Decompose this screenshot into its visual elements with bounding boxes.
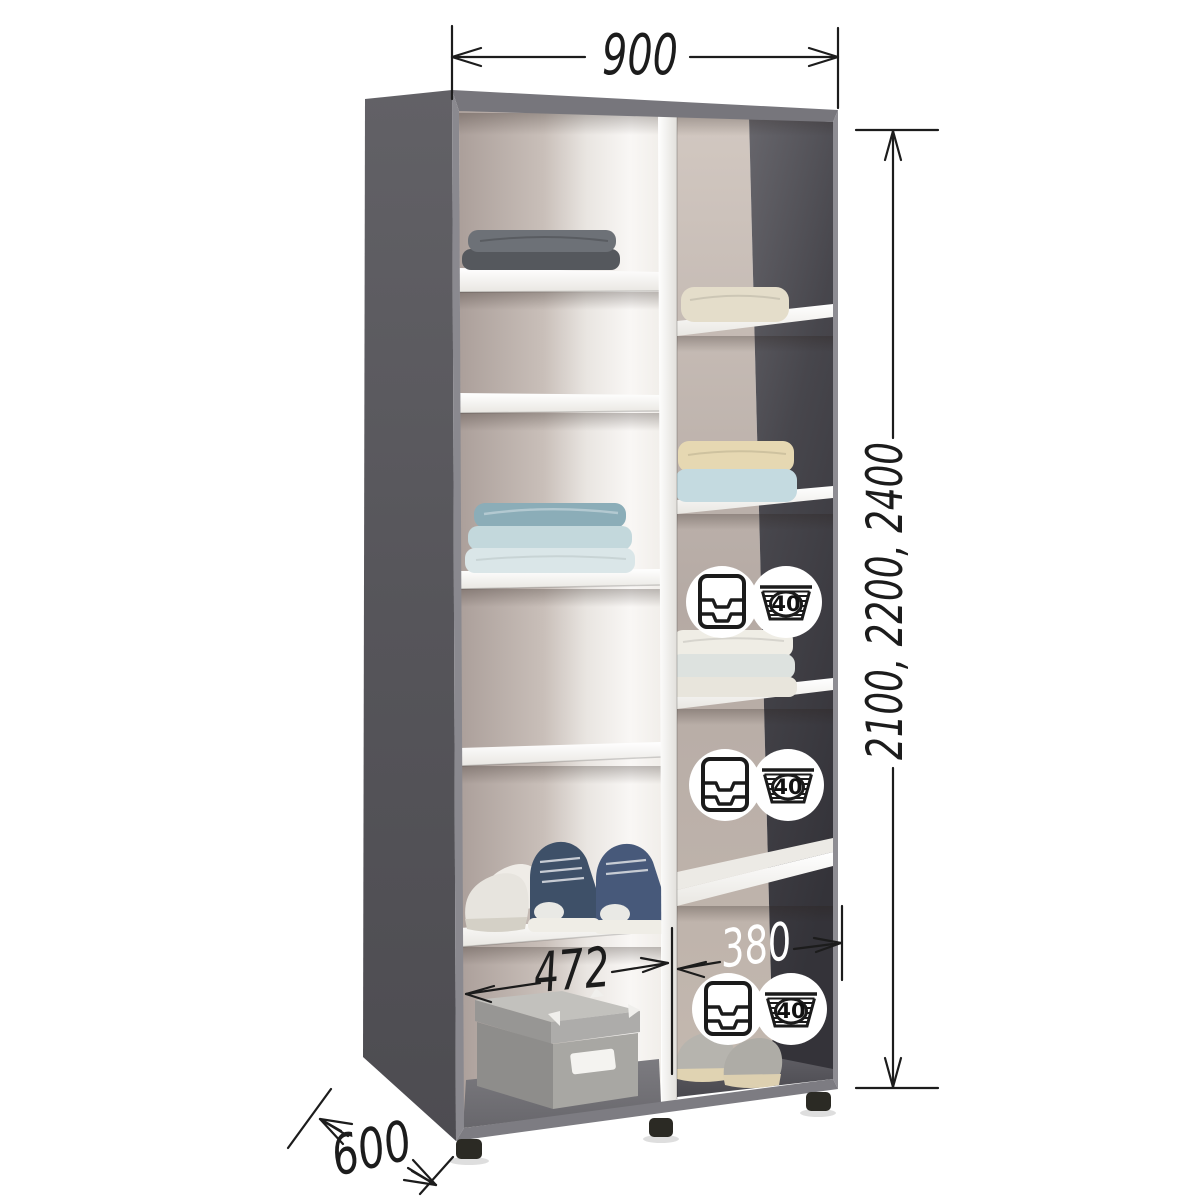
side-panel-left bbox=[363, 90, 456, 1141]
dim-heights-label: 2100, 2200, 2400 bbox=[856, 442, 914, 760]
wash-temperature-label: 40 bbox=[773, 775, 802, 799]
foot bbox=[649, 1118, 673, 1137]
storage-box bbox=[475, 988, 640, 1109]
dim-left-section-label: 472 bbox=[531, 935, 612, 1005]
shelf bbox=[459, 393, 661, 413]
drawer-organizer-icon bbox=[689, 749, 761, 821]
folded-clothes-ivory bbox=[669, 630, 797, 697]
dim-depth-label: 600 bbox=[325, 1108, 417, 1188]
folded-clothes-gray bbox=[462, 230, 620, 270]
wash-temperature-label: 40 bbox=[771, 592, 800, 616]
drawer-organizer-icon bbox=[692, 973, 764, 1045]
wardrobe-dimension-diagram: 40 40 40 900 2100, 2200, 2400 472 380 bbox=[0, 0, 1200, 1200]
wash-temperature-label: 40 bbox=[776, 999, 805, 1023]
foot bbox=[806, 1092, 831, 1111]
folded-towel-cream bbox=[681, 287, 789, 322]
shelf bbox=[459, 268, 661, 292]
diagram-canvas: 40 40 40 900 2100, 2200, 2400 472 380 bbox=[0, 0, 1200, 1200]
folded-clothes-teal bbox=[465, 503, 635, 573]
dim-right-section-label: 380 bbox=[718, 912, 795, 980]
dim-width-label: 900 bbox=[602, 23, 678, 88]
drawer-organizer-icon bbox=[686, 566, 758, 638]
folded-clothes-cream-blue bbox=[675, 441, 797, 502]
dimension-heights: 2100, 2200, 2400 bbox=[856, 130, 938, 1088]
foot bbox=[456, 1139, 482, 1159]
